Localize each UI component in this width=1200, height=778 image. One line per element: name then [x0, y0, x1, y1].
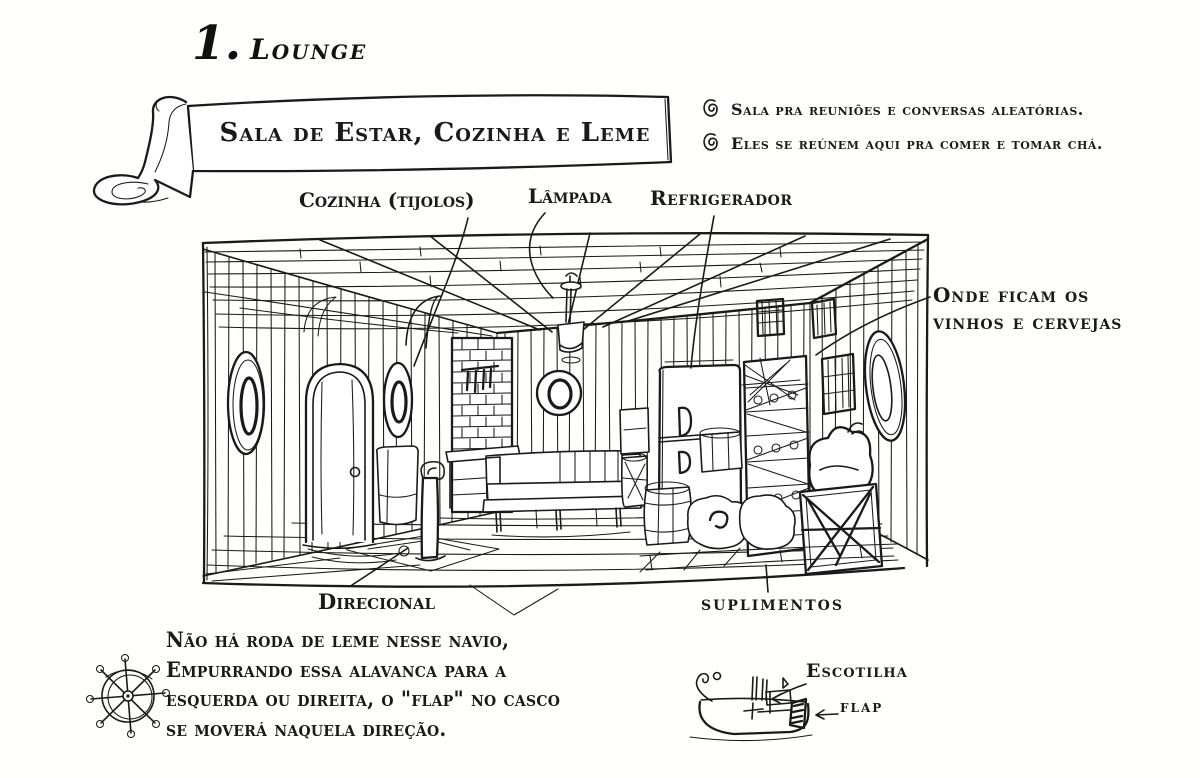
banner-title: Sala de Estar, Cozinha e Leme	[202, 103, 668, 163]
ceiling-lamp	[558, 273, 584, 363]
label-lamp: Lâmpada	[528, 184, 612, 208]
footnote-text: Não há roda de leme nesse navio, Empurra…	[166, 625, 560, 743]
note-item: Sala pra reuniões e conversas aleatórias…	[701, 97, 1084, 121]
porthole-back	[537, 371, 581, 415]
room-sketch	[203, 233, 928, 615]
concept-art-page: 1. Lounge Sala de Estar, Cozinha e Leme …	[0, 0, 1200, 778]
title-number: 1.	[192, 20, 241, 67]
label-refrigerator: Refrigerador	[650, 186, 793, 210]
label-flap: flap	[840, 697, 883, 717]
door	[303, 364, 376, 548]
label-directional: Direcional	[318, 589, 435, 614]
porthole-left-2	[384, 363, 412, 437]
note-item: Eles se reúnem aqui pra comer e tomar ch…	[701, 131, 1103, 155]
spiral-bullet-icon	[701, 97, 721, 121]
couch	[483, 451, 642, 537]
label-supplies: suplimentos	[701, 592, 844, 615]
boat-sketch	[690, 673, 838, 741]
cabinet	[620, 408, 649, 507]
helm-wheel-icon	[87, 655, 170, 738]
label-hatch: Escotilha	[806, 660, 908, 682]
porthole-right	[859, 329, 910, 443]
armchair	[377, 446, 418, 525]
label-wines-beers: Onde ficam os vinhos e cervejas	[933, 282, 1122, 336]
porthole-left-1	[228, 352, 264, 454]
note-text: Eles se reúnem aqui pra comer e tomar ch…	[731, 134, 1103, 153]
spiral-bullet-icon	[701, 131, 721, 155]
title-text: Lounge	[250, 33, 367, 66]
note-text: Sala pra reuniões e conversas aleatórias…	[731, 100, 1084, 119]
page-title: 1. Lounge	[192, 20, 367, 67]
label-kitchen: Cozinha (tijolos)	[299, 188, 475, 212]
